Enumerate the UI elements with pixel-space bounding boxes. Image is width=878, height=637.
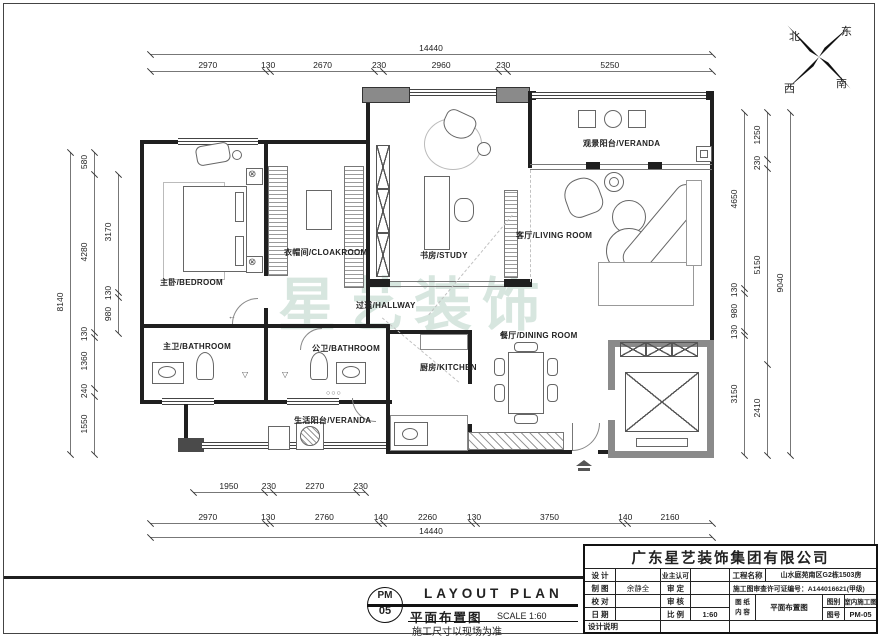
stamp-underline-thin (408, 621, 578, 622)
wall (528, 94, 532, 168)
planter (604, 110, 622, 128)
cloakroom-island (306, 190, 332, 230)
dim-label: 1950 (209, 481, 249, 491)
wall (504, 279, 532, 287)
pillow (235, 192, 244, 222)
design-notes-cell (660, 620, 729, 632)
door-frame (586, 162, 600, 169)
owner-approval-label: 业主认可 (660, 568, 690, 581)
entrance-arrow-base (578, 468, 590, 471)
dim-label: 3750 (530, 512, 570, 522)
permit-number: 施工图审查许可证编号：A144016621(甲级) (729, 581, 876, 594)
drawing-type-label: 图别 (822, 594, 844, 607)
opening-dashed-line (530, 170, 531, 282)
dim-label: 2260 (407, 512, 447, 522)
date-label: 日 期 (585, 607, 615, 620)
floorplan-sheet: { "compass": {"north":"北","east":"东","so… (0, 0, 878, 637)
wall (258, 140, 370, 144)
laundry-sink (268, 426, 290, 450)
wall (184, 404, 188, 442)
desk-chair (454, 198, 474, 222)
sliding-door (388, 281, 508, 282)
planter (578, 110, 596, 128)
room-label-public-bath: 公卫/BATHROOM (312, 343, 380, 354)
dim-line (744, 112, 745, 455)
drawing-type-value: 室内施工图 (844, 594, 876, 607)
dim-label: 130 (454, 512, 494, 522)
dim-label: 980 (103, 294, 113, 334)
wall (366, 279, 390, 287)
room-label-dining: 餐厅/DINING ROOM (500, 330, 578, 341)
review-label: 审 核 (660, 594, 690, 607)
toilet (310, 352, 328, 380)
sheet-divider-line (4, 576, 583, 579)
room-label-veranda-top: 观景阳台/VERANDA (583, 138, 660, 149)
dim-label: 4650 (729, 179, 739, 219)
side-table-inner (609, 177, 619, 187)
scale-label: 比 例 (660, 607, 690, 620)
dim-line (118, 174, 119, 333)
wall (264, 328, 268, 400)
date-value (615, 607, 660, 620)
dim-label: 14440 (411, 43, 451, 53)
room-label-hallway: 过道/HALLWAY (356, 300, 416, 311)
dim-line (767, 112, 768, 455)
sideboard (468, 432, 564, 450)
sliding-door (530, 164, 712, 165)
sofa (598, 262, 694, 306)
dim-label: 230 (249, 481, 289, 491)
concrete-column (362, 87, 410, 103)
dining-chair (514, 342, 538, 352)
dim-line (790, 112, 791, 455)
dim-label: 230 (359, 60, 399, 70)
dim-label: 2670 (303, 60, 343, 70)
sink-basin (342, 366, 360, 378)
pillow (235, 236, 244, 266)
design-label: 设 计 (585, 568, 615, 581)
check-label: 校 对 (585, 594, 615, 607)
approve-value (690, 581, 729, 594)
vent-dots: ○○○ (326, 390, 342, 397)
hall-cabinet (376, 189, 390, 233)
wall (468, 330, 472, 384)
dim-label: 2270 (295, 481, 335, 491)
sheet-content-label: 图 纸 内 容 (729, 594, 755, 620)
dining-chair (547, 384, 558, 402)
shaft-hatch (620, 342, 646, 357)
dining-chair (494, 358, 505, 376)
dining-chair (514, 414, 538, 424)
elevator-door-gap (606, 390, 616, 420)
dim-label: 8140 (55, 282, 65, 322)
desk (424, 176, 450, 250)
dining-table (508, 352, 544, 414)
side-table (232, 150, 242, 160)
dim-label: 130 (248, 512, 288, 522)
draft-value: 余静全 (615, 581, 660, 594)
shaft-hatch (672, 342, 698, 357)
toilet (196, 352, 214, 380)
room-label-master-bath: 主卫/BATHROOM (163, 341, 231, 352)
dim-label: 14440 (411, 526, 451, 536)
title-block: 广东星艺装饰集团有限公司 设 计 业主认可 工程名称 山水庭苑南区G2栋1503… (583, 544, 878, 634)
dim-line (193, 492, 365, 493)
room-label-bedroom: 主卧/BEDROOM (160, 277, 223, 288)
dim-line (150, 537, 712, 538)
side-table (477, 142, 491, 156)
planter (628, 110, 646, 128)
compass-north-label: 北 (789, 28, 800, 44)
room-label-living: 客厅/LIVING ROOM (516, 230, 592, 241)
design-notes-cell (729, 620, 876, 632)
shower-icon: ▽ (242, 370, 248, 379)
compass-west-label: 西 (784, 80, 795, 96)
wardrobe (268, 166, 288, 276)
dim-label: 2760 (304, 512, 344, 522)
sheet-note: 施工尺寸以现场为准 (412, 623, 502, 637)
wall (710, 98, 714, 346)
lamp-icon: ⊗ (248, 257, 256, 268)
check-value (615, 594, 660, 607)
dim-label: 140 (605, 512, 645, 522)
entrance-arrow-icon (576, 460, 592, 466)
room-label-study: 书房/STUDY (420, 250, 468, 261)
review-value (690, 594, 729, 607)
draft-label: 制 图 (585, 581, 615, 594)
door-leaf (572, 423, 573, 451)
balcony-rail (532, 92, 708, 99)
shaft-hatch (646, 342, 672, 357)
washing-machine-drum (300, 426, 320, 446)
room-label-service-balcony: 生活阳台/VERANDA (294, 415, 371, 426)
elevator-cab (625, 372, 699, 432)
dim-label: 5250 (590, 60, 630, 70)
wardrobe (344, 166, 364, 288)
project-value: 山水庭苑南区G2栋1503房 (765, 568, 876, 581)
dim-label: 2970 (188, 60, 228, 70)
approve-label: 审 定 (660, 581, 690, 594)
elevator-sill (636, 438, 688, 447)
project-label: 工程名称 (729, 568, 765, 581)
compass-east-label: 东 (841, 23, 852, 39)
wall (264, 308, 268, 326)
dim-label: 2970 (188, 512, 228, 522)
dim-label: 3150 (729, 374, 739, 414)
dim-label: 580 (79, 142, 89, 182)
room-label-kitchen: 厨房/KITCHEN (420, 362, 477, 373)
wall (140, 140, 178, 144)
design-notes-label: 设计说明 (585, 620, 660, 632)
concrete-column (496, 87, 530, 103)
hall-cabinet (376, 145, 390, 189)
sheet-scale: SCALE 1:60 (497, 611, 547, 621)
sheet-content-value: 平面布置图 (755, 594, 822, 620)
dim-label: 140 (361, 512, 401, 522)
dim-label: 9040 (775, 263, 785, 303)
sheet-title-en: LAYOUT PLAN (424, 586, 563, 601)
column (178, 438, 204, 452)
window (162, 398, 214, 405)
balcony-rail (202, 442, 386, 449)
dim-label: 1550 (79, 404, 89, 444)
dim-label: 2960 (421, 60, 461, 70)
sliding-door (388, 286, 508, 287)
dining-chair (547, 358, 558, 376)
lamp-icon: ⊗ (248, 169, 256, 180)
drawing-no-value: PM-05 (844, 607, 876, 620)
wall (140, 140, 144, 404)
dim-line (94, 152, 95, 454)
owner-approval-value (690, 568, 729, 581)
sink-basin (158, 366, 176, 378)
sofa-side (686, 180, 702, 266)
design-value (615, 568, 660, 581)
kitchen-basin (402, 428, 418, 440)
scale-value: 1:60 (690, 607, 729, 620)
kitchen-cabinet (420, 334, 468, 350)
dim-label: 2160 (650, 512, 690, 522)
shower-icon: ▽ (282, 370, 288, 379)
window (287, 398, 339, 405)
window (410, 89, 496, 96)
dim-label: 5150 (752, 245, 762, 285)
wall (366, 93, 370, 328)
company-name: 广东星艺装饰集团有限公司 (585, 546, 876, 568)
room-label-cloakroom: 衣帽间/CLOAKROOM (284, 247, 367, 258)
dim-label: 230 (752, 143, 762, 183)
dim-label: 4280 (79, 232, 89, 272)
dim-line (70, 152, 71, 454)
door-frame (648, 162, 662, 169)
hall-cabinet (376, 233, 390, 277)
sheet-code-prefix: PM (368, 588, 402, 604)
duct-box-inner (700, 150, 708, 158)
dim-label: 3170 (103, 212, 113, 252)
dim-label: 130 (248, 60, 288, 70)
dim-label: 230 (483, 60, 523, 70)
dim-label: 130 (729, 312, 739, 352)
sliding-door (530, 169, 712, 170)
dim-line (150, 54, 712, 55)
dim-label: 2410 (752, 388, 762, 428)
dining-chair (494, 384, 505, 402)
dim-label: 230 (341, 481, 381, 491)
drawing-no-label: 图号 (822, 607, 844, 620)
dim-line (150, 71, 712, 72)
compass-south-label: 南 (836, 75, 847, 91)
